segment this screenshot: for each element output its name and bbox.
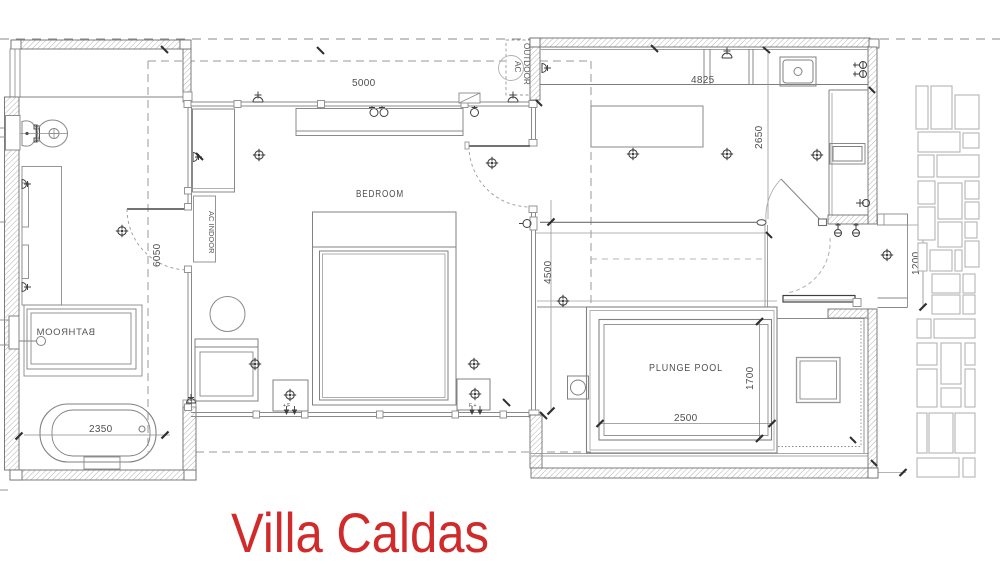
- svg-text:AC INDOOR: AC INDOOR: [207, 211, 216, 254]
- svg-text:PLUNGE POOL: PLUNGE POOL: [649, 363, 723, 374]
- svg-text:4500: 4500: [543, 260, 554, 284]
- svg-text:2500: 2500: [674, 413, 698, 424]
- svg-text:2650: 2650: [754, 125, 765, 149]
- svg-text:Villa Caldas: Villa Caldas: [231, 501, 489, 564]
- svg-text:2350: 2350: [89, 424, 113, 435]
- svg-text:+ F: + F: [283, 403, 290, 409]
- svg-text:5000: 5000: [352, 78, 376, 89]
- svg-text:F +: F +: [469, 403, 476, 409]
- svg-text:1700: 1700: [745, 366, 756, 390]
- svg-text:4825: 4825: [691, 75, 715, 86]
- svg-text:BATHROOM: BATHROOM: [36, 327, 95, 338]
- svg-text:6050: 6050: [152, 243, 163, 267]
- svg-text:BEDROOM: BEDROOM: [356, 189, 404, 200]
- svg-text:AC: AC: [513, 61, 522, 72]
